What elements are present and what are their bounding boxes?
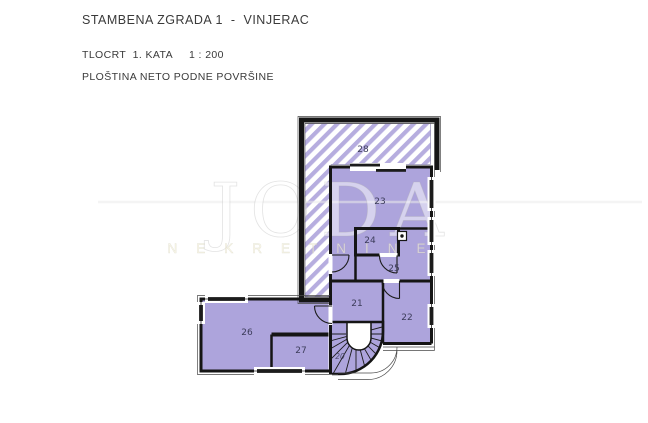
watermark-tagline: NEKRETNINE [167,241,444,256]
room-label-28: 28 [357,145,369,155]
room-label-21: 21 [351,299,362,309]
shaft-fixture-icon [398,232,407,241]
room-label-20: 20 [335,352,345,361]
room-label-23: 23 [374,197,385,207]
room-label-27: 27 [295,346,306,356]
room-label-26: 26 [241,328,253,338]
stair-newel-core [347,322,371,350]
room-label-24: 24 [364,236,376,246]
room-label-22: 22 [401,313,412,323]
room-label-25: 25 [388,264,399,274]
floor-plan-drawing: JODA NEKRETNINE [0,0,648,423]
